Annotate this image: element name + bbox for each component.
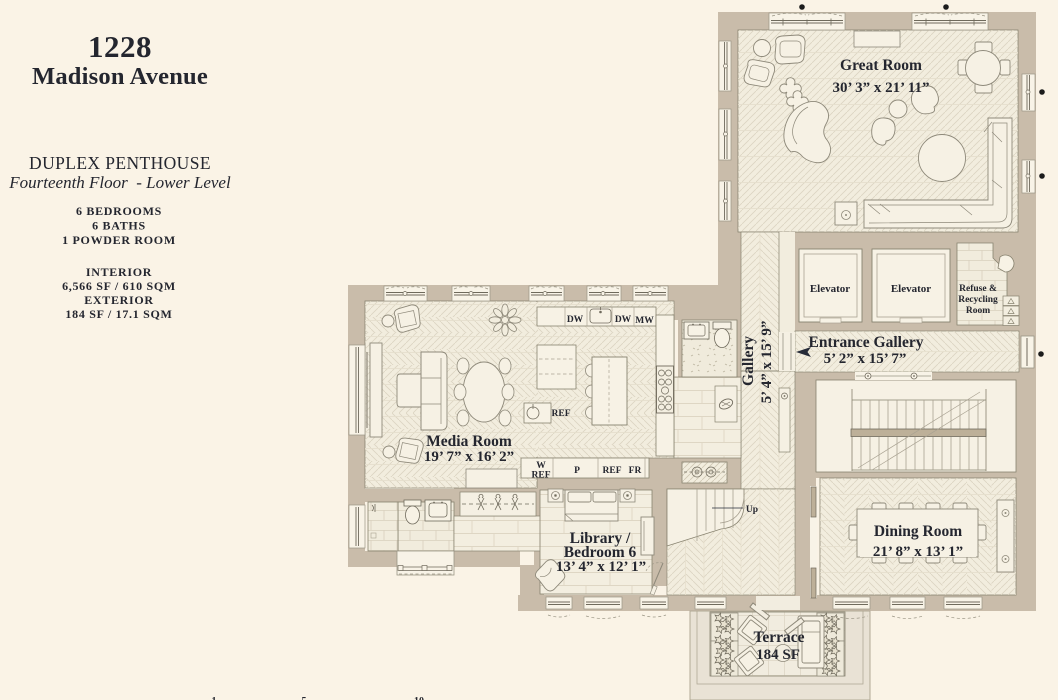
svg-text:Terrace: Terrace <box>753 629 804 646</box>
svg-text:Fourteenth Floor - Lower Leve: Fourteenth Floor - Lower Level <box>8 173 231 192</box>
svg-text:W: W <box>536 461 546 471</box>
svg-text:5’ 4” x 15’ 9”: 5’ 4” x 15’ 9” <box>759 321 775 404</box>
svg-text:Great Room: Great Room <box>840 57 922 74</box>
svg-text:REF: REF <box>552 409 571 419</box>
svg-text:Up: Up <box>746 505 758 515</box>
svg-text:21’ 8” x 13’ 1”: 21’ 8” x 13’ 1” <box>873 544 963 560</box>
svg-text:30’ 3” x 21’ 11”: 30’ 3” x 21’ 11” <box>833 80 930 96</box>
svg-text:19’ 7” x 16’ 2”: 19’ 7” x 16’ 2” <box>424 449 514 465</box>
svg-text:EXTERIOR: EXTERIOR <box>84 293 154 307</box>
svg-text:P: P <box>574 466 580 476</box>
svg-text:184 SF / 17.1 SQM: 184 SF / 17.1 SQM <box>65 307 172 321</box>
svg-text:DW: DW <box>567 315 584 325</box>
svg-text:13’ 4” x 12’ 1”: 13’ 4” x 12’ 1” <box>556 559 646 575</box>
svg-text:MW: MW <box>635 316 654 326</box>
svg-text:Recycling: Recycling <box>958 295 998 305</box>
svg-text:FR: FR <box>629 466 642 476</box>
svg-text:Dining Room: Dining Room <box>874 523 962 540</box>
svg-text:Gallery: Gallery <box>740 336 757 386</box>
svg-text:Entrance Gallery: Entrance Gallery <box>809 334 924 351</box>
svg-text:Refuse &: Refuse & <box>959 284 997 294</box>
svg-text:Madison Avenue: Madison Avenue <box>32 63 208 90</box>
svg-text:REF: REF <box>603 466 622 476</box>
svg-text:Media Room: Media Room <box>426 433 512 450</box>
svg-text:10: 10 <box>414 696 424 700</box>
svg-text:DUPLEX PENTHOUSE: DUPLEX PENTHOUSE <box>29 153 211 173</box>
svg-text:6 BEDROOMS: 6 BEDROOMS <box>76 204 162 218</box>
svg-text:1 POWDER ROOM: 1 POWDER ROOM <box>62 233 176 247</box>
svg-text:INTERIOR: INTERIOR <box>86 265 152 279</box>
svg-text:6 BATHS: 6 BATHS <box>92 219 146 233</box>
svg-text:Room: Room <box>966 306 990 316</box>
svg-text:Elevator: Elevator <box>810 283 850 295</box>
svg-text:Elevator: Elevator <box>891 283 931 295</box>
svg-text:DW: DW <box>615 315 632 325</box>
svg-text:184 SF: 184 SF <box>756 647 800 663</box>
svg-text:1: 1 <box>212 696 217 700</box>
svg-text:REF: REF <box>532 471 551 481</box>
svg-text:1228: 1228 <box>88 29 152 64</box>
svg-text:5’ 2” x 15’ 7”: 5’ 2” x 15’ 7” <box>824 351 907 367</box>
svg-text:5: 5 <box>302 696 307 700</box>
svg-text:6,566 SF / 610 SQM: 6,566 SF / 610 SQM <box>62 279 176 293</box>
